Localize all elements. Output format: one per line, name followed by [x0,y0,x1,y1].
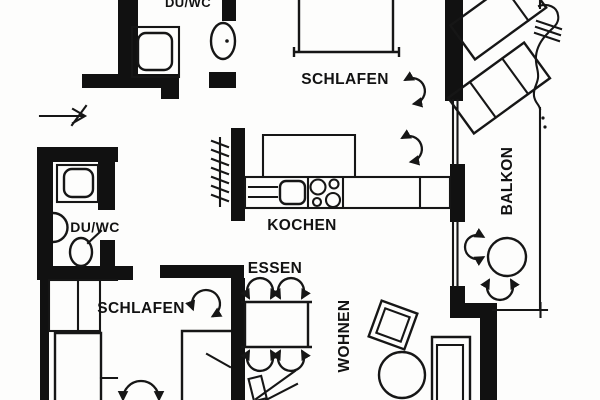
wall-segment [37,147,118,162]
kitchen-cabinet [263,135,355,177]
wall-segment [160,265,244,278]
bed-icon [55,333,101,400]
wall-segment [231,278,245,400]
room-label-bedroom-top: SCHLAFEN [301,71,389,88]
floor-lamp-icon [249,371,297,400]
wall-segment [37,147,53,280]
room-label-bathroom-bottom: DU/WC [70,219,119,235]
cooktop-icon [311,180,341,208]
wall-segment [40,266,133,280]
bed-icon [182,331,231,400]
chair-icon [247,352,273,371]
closet [49,280,100,331]
chair-icon [465,235,483,259]
wall-segment [40,280,49,400]
chair-icon [247,278,273,297]
chair-icon [487,281,513,300]
wall-segment [209,72,236,88]
window [453,222,458,286]
living [249,301,470,400]
room-label-dining: ESSEN [248,260,303,277]
bathroom-top [132,23,235,77]
door-swing-icon [406,78,425,104]
round-table [379,352,425,398]
lounge-chair-icon [448,43,550,134]
wall-segment [118,0,138,78]
counter-dividers [308,177,420,208]
shower-icon [64,169,93,197]
floor-plan: DU/WC SCHLAFEN BALKON KOCHEN ESSEN DU/WC… [0,0,600,400]
lounge-chair-icon [450,0,546,59]
door-swing-icon [192,290,220,316]
wall-segment [161,88,179,99]
dining-table [241,302,312,347]
sink-icon [249,181,305,204]
room-label-living: WOHNEN [336,299,353,372]
room-label-bathroom-top: DU/WC [165,0,211,10]
floor-plan-drawing: DU/WC SCHLAFEN BALKON KOCHEN ESSEN DU/WC… [0,0,600,400]
chair-icon [278,278,304,297]
toilet-icon [211,23,235,59]
shower-icon [138,33,172,70]
dot [541,116,544,119]
room-label-balcony: BALKON [499,147,516,216]
wall-segment [480,318,497,400]
walls [37,0,497,400]
drain-dot [225,39,229,43]
dot [543,125,546,128]
bedroom-top [293,0,425,104]
door-swing-icon [123,381,159,399]
entrance-arrow-icon [40,106,86,125]
room-label-kitchen: KOCHEN [267,217,337,234]
wall-segment [445,0,463,101]
wall-segment [231,128,245,221]
blanket-fold [207,354,230,367]
wall-segment [222,0,236,21]
kitchen [212,135,450,208]
room-label-bedroom-bottom: SCHLAFEN [97,300,185,317]
wall-segment [98,162,115,210]
washbasin-icon [53,213,68,242]
bedroom-bottom [49,280,231,400]
wall-segment [450,164,465,222]
door-swing-icon [403,136,422,162]
bed-icon [293,0,400,57]
bathroom-bottom [53,165,101,266]
side-table [369,301,418,350]
dining [241,278,312,371]
chair-icon [278,352,304,371]
balcony-table [488,238,526,276]
armchair-inner [437,345,463,400]
wall-segment [450,303,497,318]
